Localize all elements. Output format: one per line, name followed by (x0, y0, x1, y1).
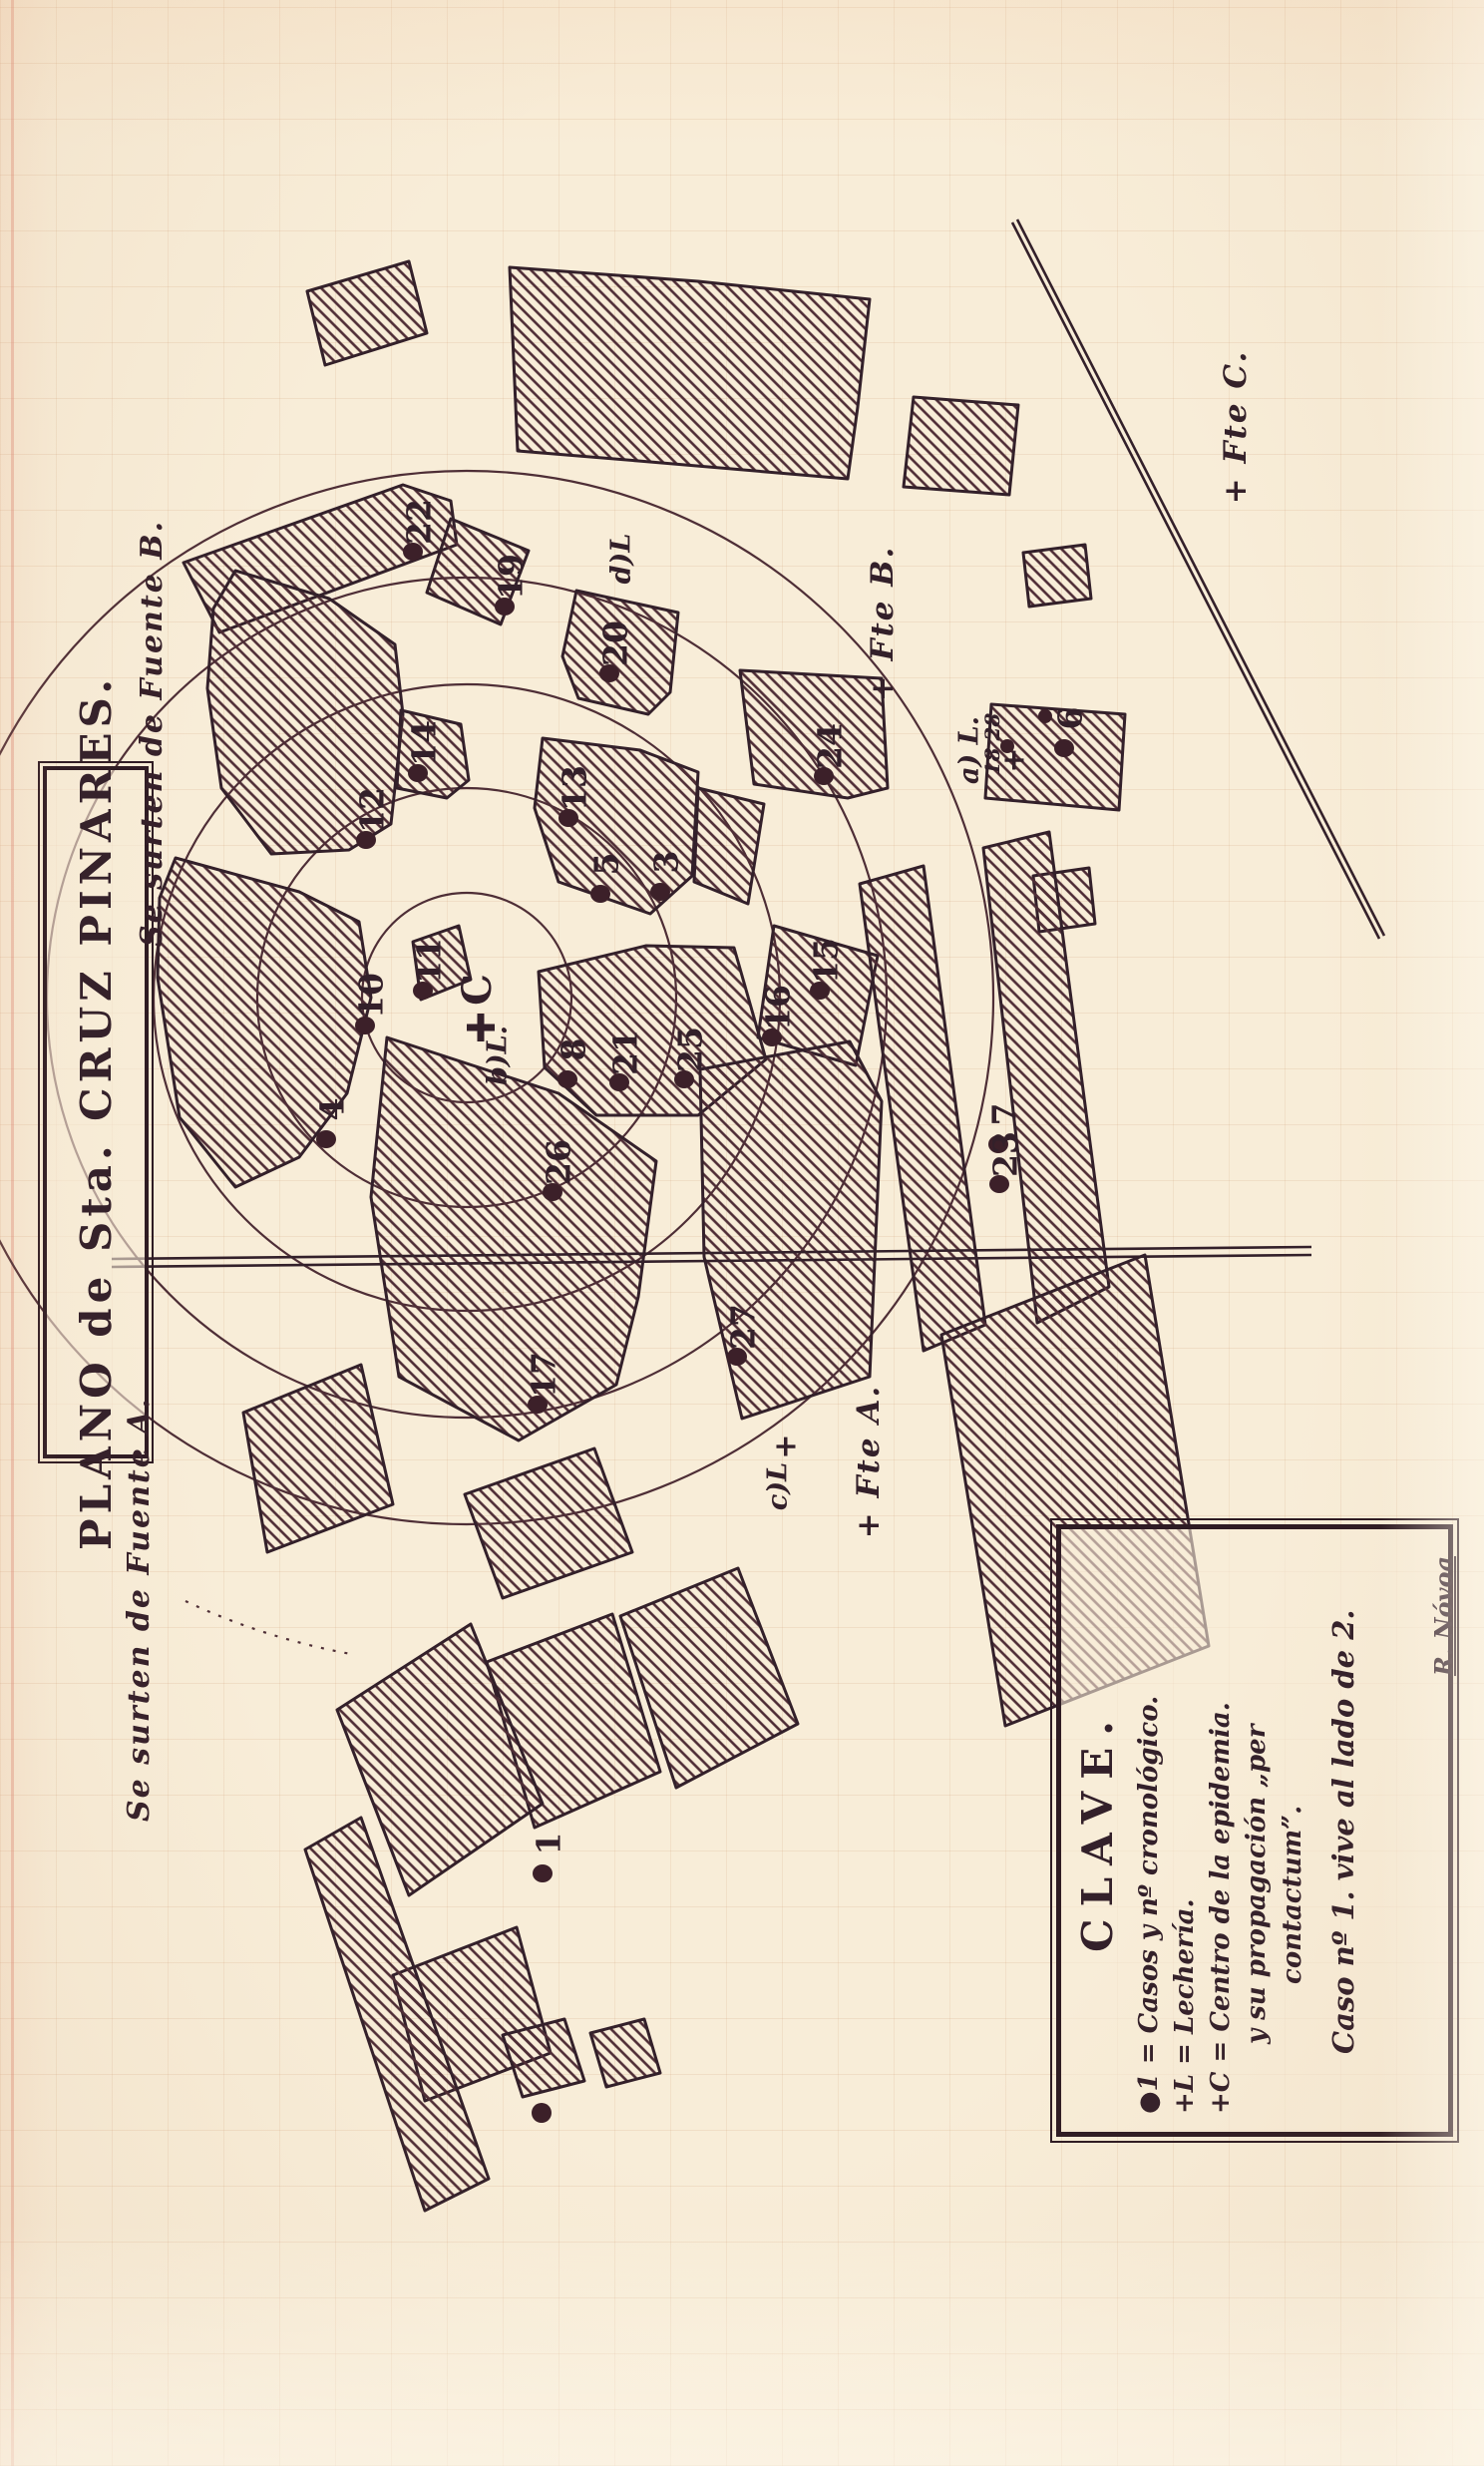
fountain-label: + Fte A. (851, 1385, 887, 1538)
case-dot (590, 885, 610, 903)
building-block (307, 261, 427, 365)
case-number: 25 (671, 1027, 710, 1072)
case-dot (1038, 709, 1052, 723)
lecheria-label: b)L. (482, 1026, 513, 1085)
building-block (243, 1365, 393, 1552)
case-dot (532, 2103, 552, 2123)
case-number: 6 (1051, 707, 1090, 730)
case-number: 26 (540, 1139, 578, 1185)
building-blocks (158, 261, 1209, 2211)
case-dot (1054, 739, 1074, 757)
building-block (535, 738, 698, 914)
case-number: 8 (555, 1038, 593, 1061)
fountain-label: + Fte B. (865, 546, 901, 702)
legend-box: CLAVE. ●1 = Casos y nº cronológico. +L =… (1056, 1524, 1453, 2137)
legend-item-centro: +C = Centro de la epidemia. (1204, 1547, 1240, 2114)
case-number: 10 (352, 973, 391, 1019)
building-block (158, 858, 371, 1187)
building-block (1023, 545, 1091, 607)
case-number: 5 (587, 853, 626, 876)
epidemic-center-label: C (454, 974, 501, 1006)
fuente-b-note: Se surten de Fuente B. (130, 504, 174, 963)
legend-heading: CLAVE. (1073, 1547, 1122, 2114)
case-number: 27 (724, 1304, 763, 1350)
map-title: PLANO de Sta. CRUZ PINARES. (72, 674, 121, 1550)
case-number: 11 (410, 938, 449, 984)
case-dot (650, 883, 670, 901)
case-number: 12 (353, 787, 392, 833)
case-number: 20 (596, 620, 635, 666)
legend-item-contactum: contactum”. (1276, 1547, 1311, 1984)
building-block (465, 1448, 632, 1598)
case-number: 23 (986, 1131, 1025, 1177)
case-number: 16 (759, 985, 798, 1030)
case-dot (316, 1130, 336, 1148)
case-number: 24 (811, 723, 850, 769)
scanned-map-page: 1345678101112131415161719202122232425262… (0, 0, 1484, 2466)
case-number: 22 (400, 499, 439, 545)
plus-mark: + (769, 1434, 804, 1458)
legend-item-lecheria: +L = Lechería. (1168, 1547, 1204, 2114)
case-number: 14 (405, 720, 444, 766)
building-block (590, 2019, 660, 2087)
lecheria-label: c)L (762, 1462, 793, 1510)
lecheria-label: d)L (605, 534, 636, 585)
case-number: 21 (606, 1029, 645, 1075)
case-number: 17 (525, 1352, 563, 1398)
case-number: 19 (492, 554, 531, 600)
legend-caso-note: Caso nº 1. vive al lado de 2. (1326, 1547, 1360, 2054)
case-number: 4 (313, 1098, 352, 1121)
building-block (694, 788, 764, 904)
author-signature: R. Nóvoa (1420, 1526, 1466, 1706)
building-block (904, 397, 1018, 495)
plus-mark: + (997, 747, 1032, 772)
case-number: 13 (556, 765, 594, 811)
dotted-arc (185, 1601, 351, 1654)
case-dot (533, 1864, 553, 1882)
case-number: 1 (530, 1833, 568, 1855)
legend-item-propagacion: y su propagación „per (1240, 1547, 1276, 2044)
fountain-label: + Fte C. (1218, 350, 1254, 505)
legend-item-cases: ●1 = Casos y nº cronológico. (1132, 1547, 1168, 2114)
case-number: 7 (985, 1103, 1024, 1126)
fuente-a-note: Se surten de Fuente A. (117, 1380, 161, 1839)
building-block (700, 1041, 882, 1419)
building-block (510, 267, 870, 479)
case-dot (557, 1070, 577, 1088)
building-block (503, 2019, 584, 2097)
case-number: 3 (647, 851, 686, 874)
case-number: 15 (807, 938, 846, 984)
case-dot (1000, 739, 1014, 753)
